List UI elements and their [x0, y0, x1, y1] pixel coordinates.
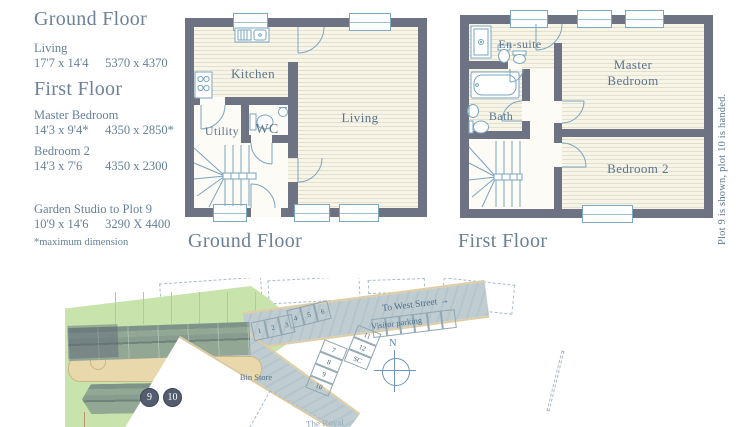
spec-footnote: *maximum dimension	[34, 237, 194, 248]
basin-icon	[513, 51, 526, 64]
room-label-ensuite: En-suite	[490, 37, 550, 52]
bay-number: 12	[358, 342, 367, 352]
bay-number: 8	[326, 358, 332, 367]
plot-badge-10: 10	[163, 388, 182, 407]
spec-studio-dims: 10'9 x 14'6 3290 X 4400	[34, 217, 194, 232]
room-label-living: Living	[315, 110, 405, 126]
existing-building-outline	[547, 351, 565, 412]
plot-handed-note: Plot 9 is shown, plot 10 is handed.	[717, 35, 728, 245]
spec-studio-name: Garden Studio to Plot 9	[34, 202, 194, 217]
compass-needle-horizontal	[374, 370, 416, 371]
shower-icon	[471, 26, 491, 58]
room-label-master: Master Bedroom	[588, 57, 678, 90]
room-label-bath: Bath	[484, 109, 518, 124]
hob-icon	[195, 72, 212, 98]
bay-number: 5	[306, 310, 311, 319]
sink-icon	[235, 28, 269, 42]
spec-studio-metric: 3290 X 4400	[105, 217, 170, 231]
spec-living-name: Living	[34, 41, 194, 56]
room-label-bedroom2: Bedroom 2	[593, 161, 683, 177]
spec-first-heading: First Floor	[34, 78, 194, 101]
spec-master-imperial: 14'3 x 9'4*	[34, 123, 102, 138]
compass-circle	[382, 358, 410, 386]
bay-number: SC	[352, 354, 363, 365]
spec-bedroom2-dims: 14'3 x 7'6 4350 x 2300	[34, 159, 194, 174]
stairs-icon	[469, 141, 522, 207]
spec-living-dims: 17'7 x 14'4 5370 x 4370	[34, 56, 194, 71]
spec-bedroom2-imperial: 14'3 x 7'6	[34, 159, 102, 174]
room-label-wc: WC	[251, 122, 283, 138]
basin-icon	[279, 108, 288, 117]
spec-master-metric: 4350 x 2850*	[105, 123, 174, 137]
compass-n-label: N	[389, 338, 397, 349]
bay-number: 9	[321, 370, 327, 379]
bay-number: 11	[363, 330, 372, 340]
parking-group-7-10: 7 8 9 10	[305, 339, 348, 397]
bay-number: 10	[314, 381, 323, 391]
terrace-roof-dark-end	[67, 324, 118, 359]
ground-floor-plan: Kitchen Utility WC Living	[185, 18, 427, 217]
first-floor-plan: En-suite Bath Master Bedroom Bedroom 2	[460, 15, 713, 218]
bay-number: 4	[293, 314, 298, 323]
bay-number: 2	[270, 323, 275, 332]
spec-master-name: Master Bedroom	[34, 108, 194, 123]
spec-block: Ground Floor Living 17'7 x 14'4 5370 x 4…	[34, 8, 194, 248]
bin-store-label: Bin Store	[238, 372, 274, 383]
brochure-page: Ground Floor Living 17'7 x 14'4 5370 x 4…	[0, 0, 743, 427]
room-label-kitchen: Kitchen	[213, 66, 293, 82]
spec-living-imperial: 17'7 x 14'4	[34, 56, 102, 71]
spec-living-metric: 5370 x 4370	[105, 56, 168, 70]
bay-number: 7	[331, 346, 337, 355]
bay-number: 1	[257, 326, 262, 335]
spec-master-dims: 14'3 x 9'4* 4350 x 2850*	[34, 123, 194, 138]
ground-floor-caption: Ground Floor	[188, 230, 302, 253]
spec-bedroom2-metric: 4350 x 2300	[105, 159, 168, 173]
bathtub-icon	[471, 72, 519, 98]
plot-badge-9: 9	[140, 388, 159, 407]
bay-number: 6	[320, 307, 325, 316]
room-label-utility: Utility	[199, 124, 245, 139]
spec-ground-heading: Ground Floor	[34, 8, 194, 31]
spec-bedroom2-name: Bedroom 2	[34, 144, 194, 159]
compass-needle-vertical	[394, 350, 395, 392]
basin-icon	[468, 105, 479, 118]
first-floor-caption: First Floor	[458, 230, 547, 253]
site-plan: 9 10 1 2 3 4 5 6 7 8 9 10 11 12 SC	[30, 278, 610, 427]
spec-studio-imperial: 10'9 x 14'6	[34, 217, 102, 232]
stairs-icon	[194, 145, 256, 207]
parking-bay	[441, 309, 457, 330]
